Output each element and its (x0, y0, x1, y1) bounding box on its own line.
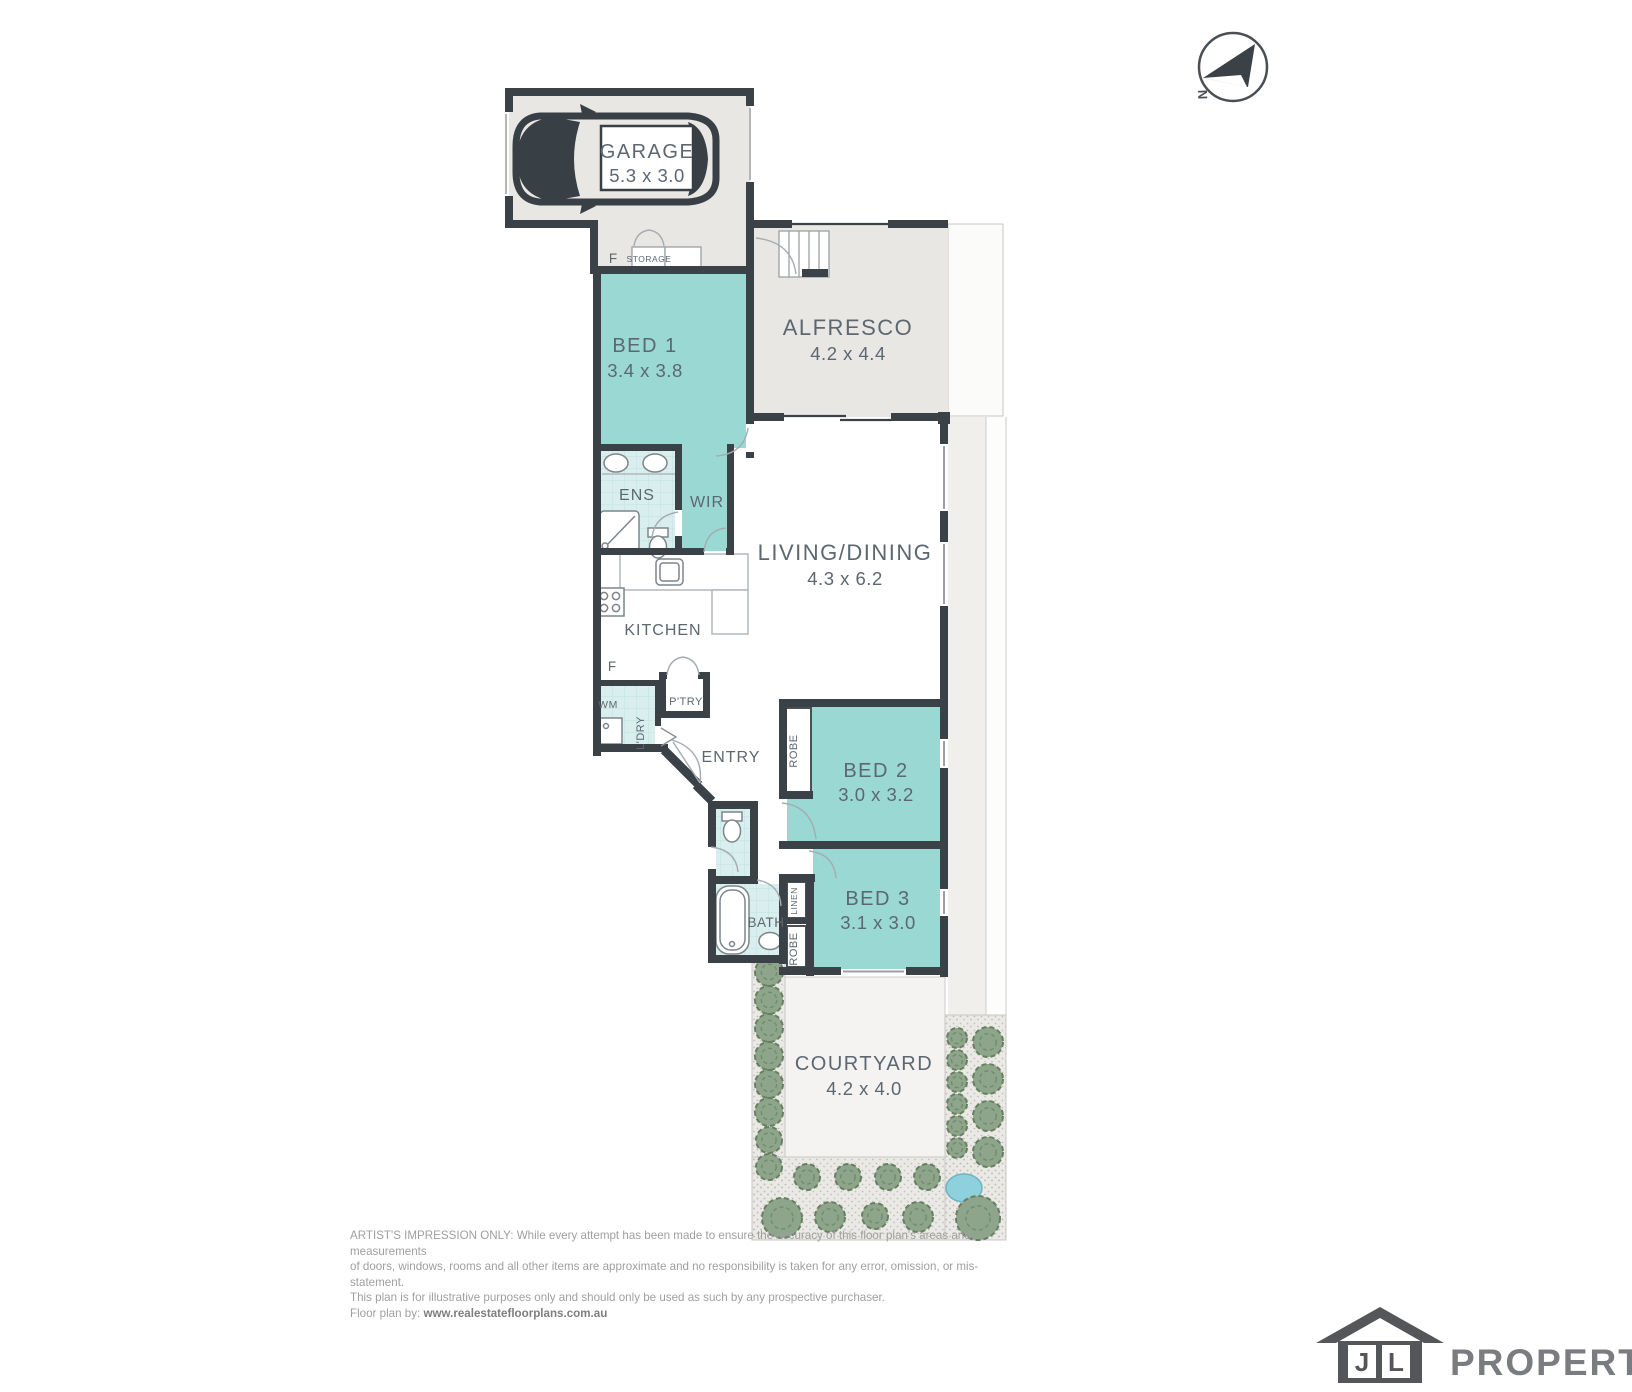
courtyard-name: COURTYARD (795, 1053, 933, 1075)
side-path-grey (948, 417, 988, 1018)
floorplan-drawing: GARAGE 5.3 x 3.0 BED 1 3.4 x 3.8 ALFRESC… (0, 0, 1632, 1392)
disclaimer-line1: ARTIST'S IMPRESSION ONLY: While every at… (350, 1228, 1030, 1259)
alfresco-dims: 4.2 x 4.4 (810, 343, 885, 364)
wir-label: WIR (690, 494, 724, 511)
floorplan-page: GARAGE 5.3 x 3.0 BED 1 3.4 x 3.8 ALFRESC… (0, 0, 1632, 1392)
entry-label: ENTRY (702, 749, 761, 766)
bed1-name: BED 1 (612, 335, 677, 357)
kitchen-label: KITCHEN (624, 622, 701, 639)
north-compass: N (1195, 33, 1267, 101)
disclaimer-credit: Floor plan by: www.realestatefloorplans.… (350, 1306, 1030, 1322)
fridge-kitchen-label: F (608, 659, 616, 674)
logo-initial-j: J (1355, 1347, 1369, 1377)
brand-logo: J L PROPERTY (1312, 1296, 1632, 1386)
fridge-storage-label: F (609, 251, 617, 266)
bed2-dims: 3.0 x 3.2 (838, 784, 913, 805)
disclaimer-line2: of doors, windows, rooms and all other i… (350, 1259, 1030, 1290)
disclaimer: ARTIST'S IMPRESSION ONLY: While every at… (350, 1228, 1030, 1322)
bed3-name: BED 3 (845, 888, 910, 910)
alfresco-name: ALFRESCO (783, 315, 914, 340)
kitchen-bench (620, 554, 748, 590)
robe-bed2-label: ROBE (788, 734, 800, 767)
laundry-label: L'DRY (635, 716, 647, 750)
pantry-label: P'TRY (669, 696, 703, 708)
storage-label: STORAGE (627, 254, 672, 264)
living-name: LIVING/DINING (758, 540, 933, 565)
bed3-dims: 3.1 x 3.0 (840, 912, 915, 933)
disclaimer-line3: This plan is for illustrative purposes o… (350, 1290, 1030, 1306)
logo-initial-l: L (1388, 1347, 1404, 1377)
logo-roof-icon (1316, 1307, 1444, 1343)
floorplan-credit-url: www.realestatefloorplans.com.au (423, 1307, 607, 1320)
bath-basin (759, 933, 781, 950)
ens-basin (604, 454, 628, 472)
garage-name: GARAGE (600, 141, 695, 163)
bed1-dims: 3.4 x 3.8 (607, 360, 682, 381)
logo-wordmark: PROPERTY (1450, 1342, 1632, 1383)
bed2-name: BED 2 (843, 760, 908, 782)
wm-label: WM (598, 699, 618, 711)
courtyard-dims: 4.2 x 4.0 (826, 1078, 901, 1099)
robe-bed3-label: ROBE (788, 932, 800, 965)
linen-label: LINEN (789, 887, 799, 915)
garage-dims: 5.3 x 3.0 (609, 165, 684, 186)
side-path-upper (948, 224, 1003, 416)
north-label: N (1195, 90, 1210, 100)
ens-label: ENS (619, 487, 655, 504)
living-dims: 4.3 x 6.2 (807, 568, 882, 589)
brand-logo-svg: J L PROPERTY (1312, 1296, 1632, 1386)
washing-machine (598, 718, 622, 744)
bath-label: BATH (747, 915, 784, 930)
